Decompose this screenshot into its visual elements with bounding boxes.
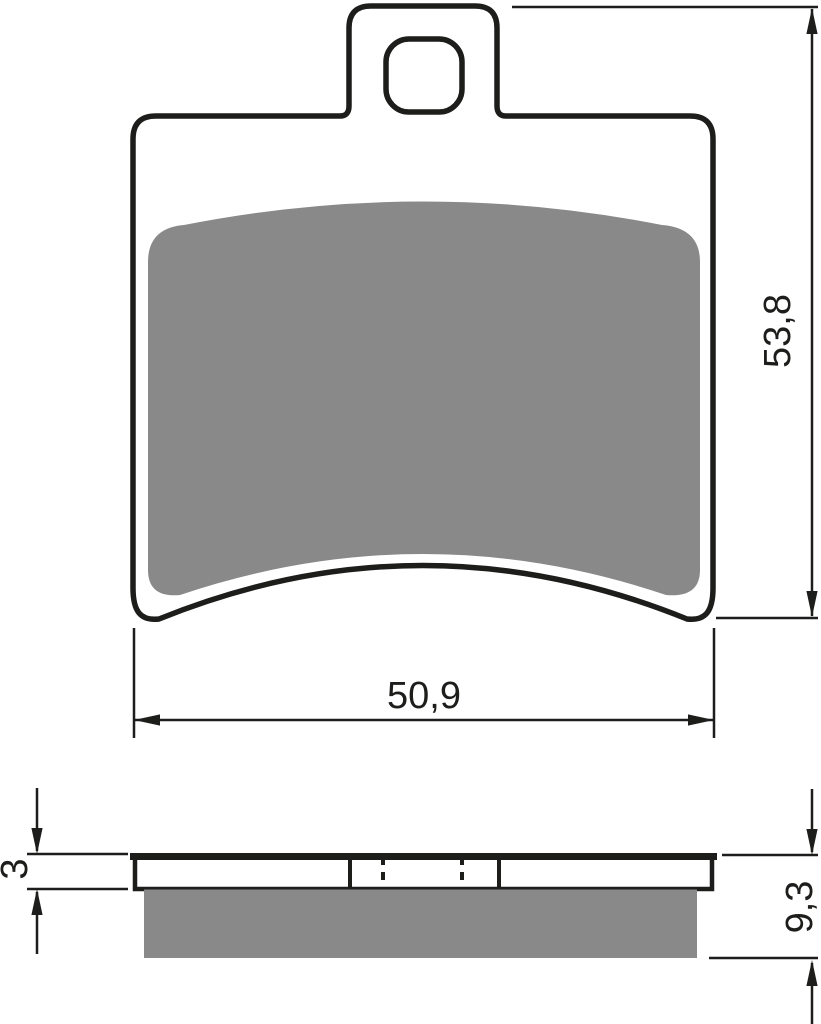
front-view bbox=[133, 6, 713, 619]
technical-drawing-canvas: 50,9 53,8 3 bbox=[0, 0, 821, 1024]
total-thickness-label: 9,3 bbox=[779, 881, 821, 934]
height-dimension-label: 53,8 bbox=[757, 294, 799, 368]
height-arrowhead-bottom bbox=[806, 591, 817, 617]
width-dimension: 50,9 bbox=[134, 628, 714, 738]
total-thickness-arrowhead-bottom bbox=[806, 960, 817, 986]
plate-thickness-arrowhead-bottom bbox=[31, 889, 42, 915]
total-thickness-arrowhead-top bbox=[806, 829, 817, 855]
width-arrowhead-right bbox=[688, 714, 714, 725]
plate-thickness-arrowhead-top bbox=[31, 828, 42, 854]
friction-pad-front bbox=[148, 202, 700, 596]
total-thickness-dimension: 9,3 bbox=[709, 789, 821, 1024]
mounting-hole bbox=[386, 39, 462, 112]
friction-pad-side bbox=[144, 890, 697, 959]
side-view bbox=[130, 856, 717, 958]
brake-pad-drawing: 50,9 53,8 3 bbox=[0, 0, 821, 1024]
width-arrowhead-left bbox=[134, 714, 160, 725]
backplate-side bbox=[135, 856, 712, 889]
plate-thickness-label: 3 bbox=[0, 858, 36, 879]
height-arrowhead-top bbox=[806, 8, 817, 34]
width-dimension-label: 50,9 bbox=[387, 675, 461, 717]
plate-thickness-dimension: 3 bbox=[0, 788, 128, 954]
